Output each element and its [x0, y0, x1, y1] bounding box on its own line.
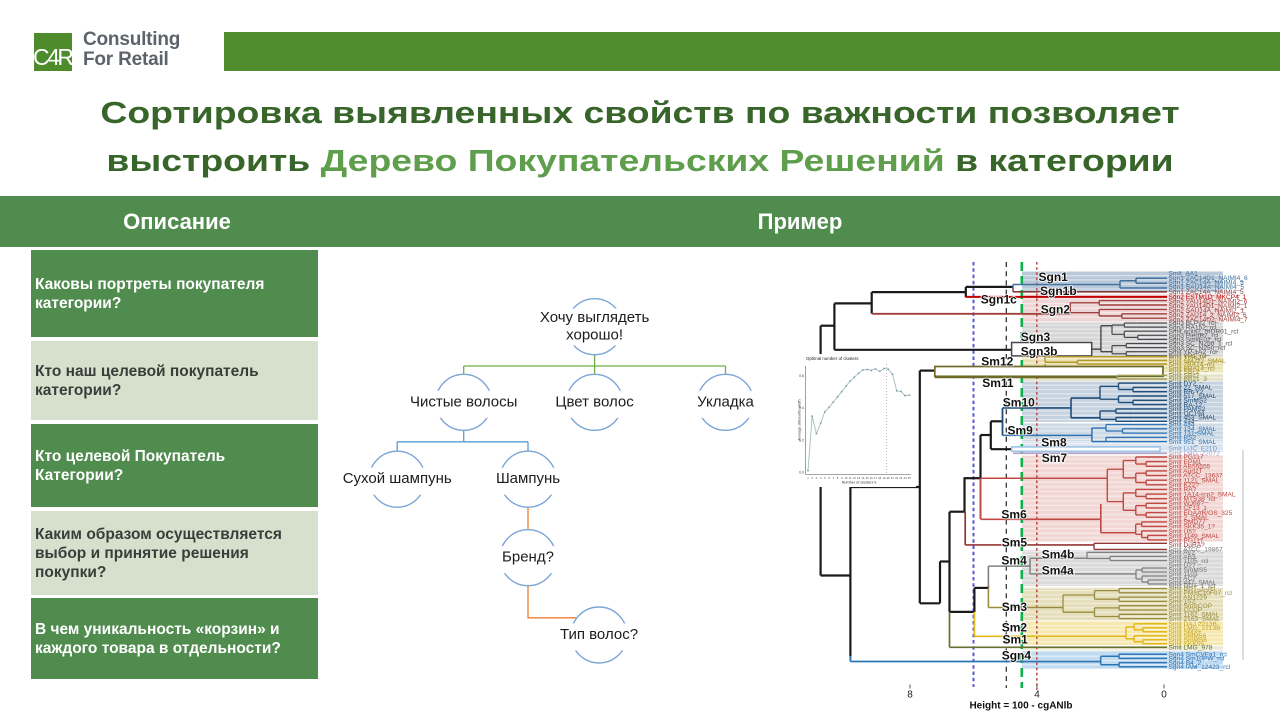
- svg-text:4: 4: [1034, 690, 1040, 701]
- svg-text:Укладка: Укладка: [697, 393, 754, 410]
- svg-text:Sm10: Sm10: [1003, 396, 1035, 410]
- svg-text:Sm6: Sm6: [1001, 508, 1027, 522]
- svg-text:Sm9: Sm9: [1008, 424, 1034, 438]
- svg-text:Цвет волос: Цвет волос: [555, 393, 634, 410]
- svg-text:0.0: 0.0: [799, 471, 804, 475]
- svg-text:21: 21: [891, 476, 894, 480]
- svg-text:12: 12: [853, 476, 856, 480]
- svg-text:Sm12: Sm12: [981, 355, 1013, 369]
- svg-text:15: 15: [866, 476, 869, 480]
- svg-text:Sm11: Sm11: [982, 376, 1014, 390]
- svg-text:Sgn3: Sgn3: [1021, 330, 1051, 344]
- svg-text:Sm7: Sm7: [1042, 451, 1068, 465]
- svg-text:Sm5: Sm5: [1002, 536, 1028, 550]
- svg-text:Sm3: Sm3: [1002, 600, 1028, 614]
- svg-text:Sm1: Sm1: [1003, 633, 1029, 647]
- svg-text:Sgn1b: Sgn1b: [1040, 284, 1077, 298]
- svg-text:Sm8: Sm8: [1041, 436, 1067, 450]
- svg-text:Sgn4: Sgn4: [1002, 649, 1032, 663]
- svg-text:0: 0: [1161, 690, 1167, 701]
- svg-text:хорошо!: хорошо!: [566, 327, 623, 344]
- svg-text:Sm4b: Sm4b: [1042, 548, 1075, 562]
- svg-text:16: 16: [870, 476, 873, 480]
- svg-text:Sm4: Sm4: [1001, 554, 1027, 568]
- svg-text:20: 20: [887, 476, 890, 480]
- svg-text:0.6: 0.6: [799, 374, 804, 378]
- svg-text:Number of clusters k: Number of clusters k: [842, 481, 877, 485]
- svg-text:11: 11: [849, 476, 852, 480]
- svg-text:Сухой шампунь: Сухой шампунь: [343, 470, 452, 487]
- svg-text:Sgn1: Sgn1: [1039, 270, 1069, 284]
- svg-text:Height = 100 - cgANlb: Height = 100 - cgANlb: [969, 701, 1072, 712]
- svg-text:25: 25: [908, 476, 911, 480]
- svg-text:14: 14: [861, 476, 864, 480]
- svg-text:19: 19: [883, 476, 886, 480]
- svg-text:Sgn3b: Sgn3b: [1021, 345, 1058, 359]
- svg-text:Sgn4 IAM_12423_rcl: Sgn4 IAM_12423_rcl: [1169, 664, 1231, 671]
- svg-text:24: 24: [904, 476, 907, 480]
- svg-text:Optimal number of clusters: Optimal number of clusters: [806, 356, 859, 361]
- svg-text:Бренд?: Бренд?: [502, 549, 554, 566]
- svg-text:Sgn2: Sgn2: [1041, 303, 1071, 317]
- svg-text:22: 22: [895, 476, 898, 480]
- svg-text:Sm4a: Sm4a: [1042, 564, 1074, 578]
- svg-text:13: 13: [857, 476, 860, 480]
- svg-text:23: 23: [899, 476, 902, 480]
- svg-text:Sgn1c: Sgn1c: [981, 292, 1017, 306]
- svg-text:10: 10: [845, 476, 848, 480]
- svg-text:8: 8: [907, 690, 913, 701]
- svg-text:Чистые волосы: Чистые волосы: [410, 393, 517, 410]
- svg-text:Хочу выглядеть: Хочу выглядеть: [540, 309, 650, 326]
- svg-text:17: 17: [874, 476, 877, 480]
- svg-text:18: 18: [878, 476, 881, 480]
- svg-text:Тип волос?: Тип волос?: [560, 626, 638, 643]
- svg-text:Average silhouette width: Average silhouette width: [798, 399, 802, 440]
- svg-text:Шампунь: Шампунь: [496, 470, 560, 487]
